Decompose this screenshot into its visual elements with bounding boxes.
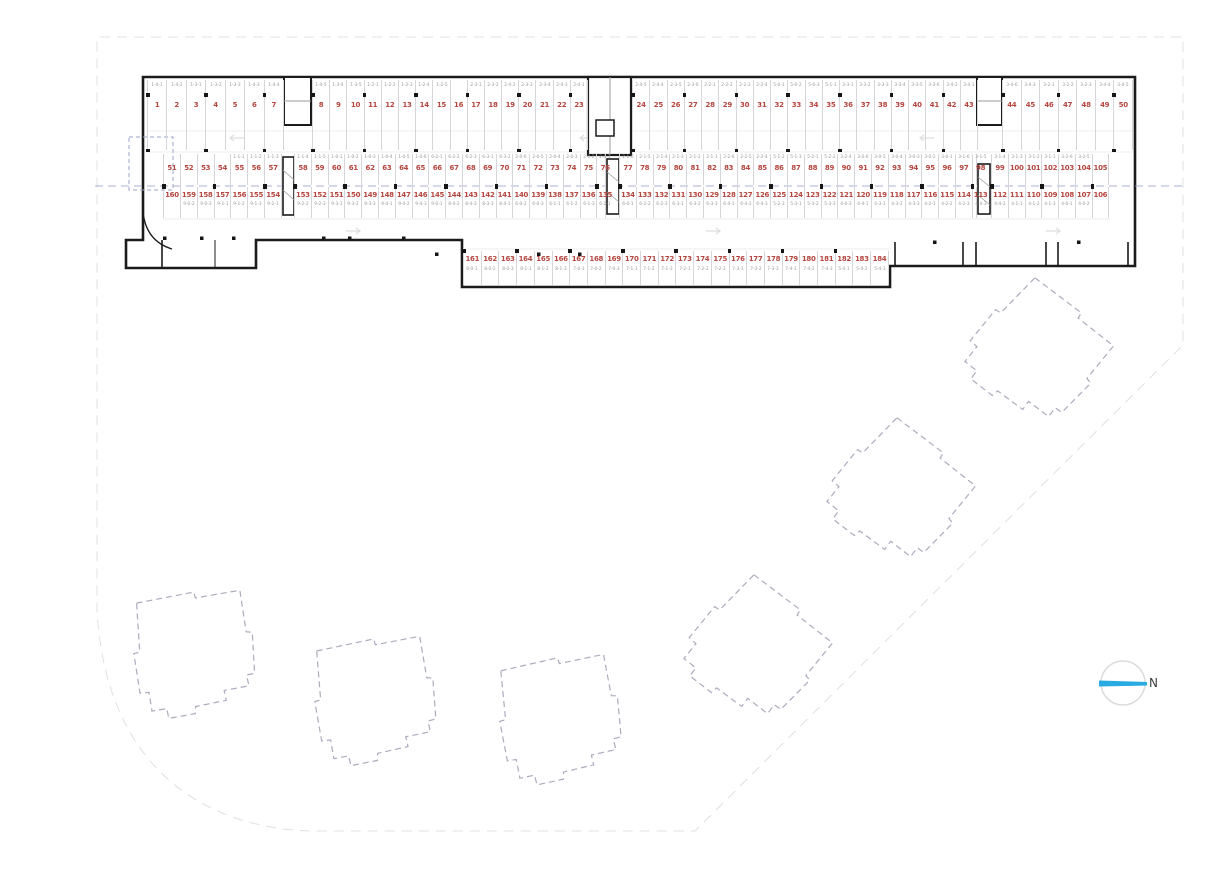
unit-code: 5-0-2: [791, 83, 802, 87]
parking-space-55: 1-1-155: [230, 154, 247, 185]
parking-space-174: 1747-2-2: [693, 251, 711, 285]
row-top-segment-1: 1-4-111-4-221-3-131-3-241-3-351-4-361-4-…: [147, 80, 284, 150]
unit-code: 1-4-5: [315, 83, 326, 87]
space-number: 54: [218, 164, 227, 172]
parking-space-66: 6-2-166: [428, 154, 445, 185]
unit-code: 8-4-1: [499, 202, 510, 206]
space-number: 2: [174, 101, 179, 109]
space-number: 176: [731, 255, 745, 263]
parking-space-97: 3-1-697: [955, 154, 972, 185]
space-number: 17: [471, 101, 480, 109]
parking-space-171: 1717-1-2: [640, 251, 658, 285]
parking-space-179: 1797-4-1: [782, 251, 800, 285]
space-number: 33: [792, 101, 801, 109]
parking-space-2: 1-4-22: [166, 80, 185, 150]
space-number: 66: [433, 164, 442, 172]
unit-code: 5-0-3: [808, 83, 819, 87]
space-number: 6: [252, 101, 257, 109]
parking-space-71: 2-0-671: [512, 154, 529, 185]
parking-space-36: 3-3-136: [839, 80, 856, 150]
parking-space-101: 3-1-2101: [1025, 154, 1042, 185]
space-number: 30: [740, 101, 749, 109]
unit-code: 9-0-1: [432, 202, 443, 206]
space-number: 68: [466, 164, 475, 172]
space-number: 22: [557, 101, 566, 109]
unit-code: 1-4-4: [268, 83, 279, 87]
unit-code: 2-0-3: [566, 155, 577, 159]
space-number: 153: [296, 191, 310, 199]
space-number: 15: [437, 101, 446, 109]
parking-space-172: 1727-1-3: [658, 251, 676, 285]
unit-code: 3-4-3: [1025, 83, 1036, 87]
unit-code: 6-4-2: [740, 202, 751, 206]
unit-code: 3-1-4: [994, 155, 1005, 159]
parking-space-57: 1-1-357: [264, 154, 281, 185]
unit-code: 2-3-6: [687, 83, 698, 87]
space-number: 136: [582, 191, 596, 199]
unit-code: 9-1-2: [234, 202, 245, 206]
footprint-outline: [308, 632, 442, 769]
unit-code: 7-1-1: [626, 267, 637, 271]
unit-code: 3-4-2: [946, 83, 957, 87]
parking-space-8: 1-4-58: [312, 80, 329, 150]
space-number: 7: [271, 101, 276, 109]
parking-space-46: 3-2-146: [1039, 80, 1058, 150]
parking-space-12: 1-2-212: [381, 80, 398, 150]
unit-code: 2-3-2: [487, 83, 498, 87]
parking-space-142: 1428-3-3: [479, 187, 496, 218]
unit-code: 1-3-2: [210, 83, 221, 87]
space-number: 38: [878, 101, 887, 109]
space-number: 149: [363, 191, 377, 199]
parking-space-59: 1-1-559: [311, 154, 328, 185]
parking-space-168: 1687-0-2: [587, 251, 605, 285]
unit-code: 1-3-3: [229, 83, 240, 87]
space-number: 113: [974, 191, 988, 199]
space-number: 76: [601, 164, 610, 172]
parking-space-134: 1346-0-1: [619, 187, 636, 218]
parking-space-49: 3-4-449: [1095, 80, 1114, 150]
unit-code: 6-3-1: [673, 202, 684, 206]
space-number: 145: [430, 191, 444, 199]
space-number: 35: [826, 101, 835, 109]
parking-space-117: 1174-3-3: [905, 187, 922, 218]
parking-space-169: 1697-0-3: [605, 251, 623, 285]
parking-space-96: 3-0-196: [938, 154, 955, 185]
footprint-outline: [128, 586, 260, 721]
row-mid-upper-segment-1: 515253541-1-1551-1-2561-1-357: [163, 154, 282, 185]
space-number: 134: [621, 191, 635, 199]
unit-code: 3-0-4: [891, 155, 902, 159]
space-number: 156: [233, 191, 247, 199]
unit-code: 7-4-3: [821, 267, 832, 271]
space-number: 100: [1010, 164, 1024, 172]
unit-code: 1-0-3: [364, 155, 375, 159]
unit-code: 3-0-2: [925, 155, 936, 159]
space-number: 138: [548, 191, 562, 199]
parking-space-147: 1479-4-2: [395, 187, 412, 218]
space-number: 32: [775, 101, 784, 109]
parking-space-70: 6-3-270: [496, 154, 513, 185]
unit-code: 4-1-2: [1028, 202, 1039, 206]
unit-code: 3-3-2: [860, 83, 871, 87]
space-number: 172: [660, 255, 674, 263]
space-number: 159: [182, 191, 196, 199]
unit-code: 4-4-3: [975, 202, 986, 206]
parking-space-18: 2-3-218: [484, 80, 501, 150]
parking-space-145: 1459-0-1: [428, 187, 445, 218]
unit-code: 8-0-2: [484, 267, 495, 271]
space-number: 46: [1044, 101, 1053, 109]
parking-space-149: 1499-3-3: [361, 187, 378, 218]
unit-code: 5-2-1: [807, 155, 818, 159]
unit-code: 7-4-2: [803, 267, 814, 271]
space-number: 110: [1027, 191, 1041, 199]
space-number: 23: [574, 101, 583, 109]
unit-code: 5-3-1: [790, 202, 801, 206]
unit-code: 3-4-5: [1118, 83, 1129, 87]
unit-code: 1-2-5: [436, 83, 447, 87]
space-number: 50: [1119, 101, 1128, 109]
parking-space-44: 3-4-644: [1002, 80, 1021, 150]
unit-code: 1-4-2: [171, 83, 182, 87]
parking-space-54: 54: [214, 154, 231, 185]
row-top-segment-2: 1-4-581-3-491-3-5101-2-1111-2-2121-2-313…: [312, 80, 588, 150]
unit-code: 3-1-5: [975, 155, 986, 159]
parking-space-122: 1225-3-3: [821, 187, 838, 218]
space-number: 21: [540, 101, 549, 109]
space-number: 90: [842, 164, 851, 172]
parking-space-173: 1737-2-1: [675, 251, 693, 285]
space-number: 57: [269, 164, 278, 172]
unit-code: 4-4-2: [994, 202, 1005, 206]
parking-space-93: 3-0-493: [888, 154, 905, 185]
parking-space-105: 105: [1092, 154, 1108, 185]
parking-space-130: 1306-3-2: [686, 187, 703, 218]
unit-code: 9-4-3: [415, 202, 426, 206]
parking-space-127: 1276-4-2: [737, 187, 754, 218]
parking-space-110: 1104-1-2: [1025, 187, 1042, 218]
parking-space-75: 2-0-275: [580, 154, 597, 185]
parking-space-94: 3-0-394: [905, 154, 922, 185]
parking-space-181: 1817-4-3: [817, 251, 835, 285]
unit-code: 8-4-2: [448, 202, 459, 206]
space-number: 131: [671, 191, 685, 199]
parking-space-68: 6-2-368: [462, 154, 479, 185]
unit-code: 6-2-1: [432, 155, 443, 159]
parking-space-14: 1-2-414: [415, 80, 432, 150]
unit-code: 1-0-1: [331, 155, 342, 159]
space-number: 164: [519, 255, 533, 263]
unit-code: 3-0-5: [874, 155, 885, 159]
space-number: 72: [533, 164, 542, 172]
parking-space-126: 1266-4-3: [753, 187, 770, 218]
unit-code: 3-2-5: [1078, 155, 1089, 159]
parking-space-104: 3-2-5104: [1075, 154, 1092, 185]
space-number: 56: [252, 164, 261, 172]
parking-space-119: 1194-3-1: [871, 187, 888, 218]
parking-space-67: 6-2-267: [445, 154, 462, 185]
unit-code: 2-4-3: [556, 83, 567, 87]
space-number: 79: [657, 164, 666, 172]
unit-code: 6-2-3: [465, 155, 476, 159]
space-number: 179: [784, 255, 798, 263]
space-number: 130: [688, 191, 702, 199]
parking-space-21: 2-3-421: [535, 80, 552, 150]
parking-space-32: 5-0-132: [770, 80, 787, 150]
north-arrow-icon: [1099, 661, 1147, 705]
space-number: 122: [823, 191, 837, 199]
space-number: 165: [536, 255, 550, 263]
space-number: 9: [336, 101, 341, 109]
space-number: 151: [330, 191, 344, 199]
space-number: 64: [399, 164, 408, 172]
space-number: 177: [749, 255, 763, 263]
space-number: 135: [598, 191, 612, 199]
parking-space-3: 1-3-13: [186, 80, 205, 150]
unit-code: 7-2-1: [679, 267, 690, 271]
parking-space-1: 1-4-11: [147, 80, 166, 150]
space-number: 129: [705, 191, 719, 199]
parking-space-89: 5-2-289: [821, 154, 838, 185]
parking-space-156: 1569-1-2: [230, 187, 247, 218]
parking-space-79: 2-1-479: [653, 154, 670, 185]
space-number: 27: [688, 101, 697, 109]
space-number: 89: [825, 164, 834, 172]
parking-space-45: 3-4-345: [1021, 80, 1040, 150]
north-label: N: [1149, 676, 1158, 690]
unit-code: 8-0-3: [502, 267, 513, 271]
parking-space-113: 1134-4-3: [972, 187, 989, 218]
parking-space-10: 1-3-510: [346, 80, 363, 150]
unit-code: 5-3-2: [807, 202, 818, 206]
space-number: 178: [766, 255, 780, 263]
unit-code: 2-0-5: [532, 155, 543, 159]
unit-code: 5-4-2: [856, 267, 867, 271]
unit-code: 2-2-2: [722, 83, 733, 87]
unit-code: 2-1-2: [689, 155, 700, 159]
space-number: 71: [517, 164, 526, 172]
unit-code: 2-2-4: [757, 155, 768, 159]
space-number: 109: [1043, 191, 1057, 199]
row-mid-upper-segment-4: 3-1-4993-1-31003-1-21013-1-11023-2-61033…: [991, 154, 1109, 185]
parking-space-167: 1677-0-1: [569, 251, 587, 285]
parking-space-60: 1-0-160: [328, 154, 345, 185]
unit-code: 4-2-1: [925, 202, 936, 206]
space-number: 5: [233, 101, 238, 109]
space-number: 132: [655, 191, 669, 199]
parking-space-84: 2-2-584: [737, 154, 754, 185]
unit-code: 1-2-4: [419, 83, 430, 87]
unit-code: 1-3-5: [350, 83, 361, 87]
unit-code: 7-0-2: [591, 267, 602, 271]
space-number: 180: [802, 255, 816, 263]
parking-space-74: 2-0-374: [563, 154, 580, 185]
parking-space-140: 1406-0-2: [512, 187, 529, 218]
unit-code: 2-1-1: [706, 155, 717, 159]
parking-space-144: 1448-4-2: [445, 187, 462, 218]
parking-space-16: 16: [450, 80, 467, 150]
parking-space-125: 1255-2-3: [770, 187, 787, 218]
space-number: 127: [739, 191, 753, 199]
parking-space-9: 1-3-49: [329, 80, 346, 150]
parking-space-137: 1376-1-2: [563, 187, 580, 218]
unit-code: 3-0-6: [857, 155, 868, 159]
unit-code: 7-3-2: [750, 267, 761, 271]
unit-code: 3-2-1: [1043, 83, 1054, 87]
parking-space-58: 1-1-458: [294, 154, 311, 185]
space-number: 111: [1010, 191, 1024, 199]
parking-space-85: 2-2-485: [753, 154, 770, 185]
unit-code: 7-1-2: [644, 267, 655, 271]
space-number: 133: [638, 191, 652, 199]
parking-space-107: 1074-0-2: [1075, 187, 1092, 218]
parking-space-91: 3-0-691: [854, 154, 871, 185]
space-number: 162: [483, 255, 497, 263]
parking-space-63: 1-0-463: [378, 154, 395, 185]
space-number: 161: [465, 255, 479, 263]
unit-code: 1-0-2: [348, 155, 359, 159]
unit-code: 6-0-1: [622, 202, 633, 206]
parking-space-138: 1386-1-1: [546, 187, 563, 218]
unit-code: 5-1-3: [790, 155, 801, 159]
parking-space-177: 1777-3-2: [746, 251, 764, 285]
parking-space-124: 1245-3-1: [787, 187, 804, 218]
unit-code: 3-3-5: [911, 83, 922, 87]
unit-code: 7-3-1: [732, 267, 743, 271]
space-number: 82: [707, 164, 716, 172]
unit-code: 1-1-3: [267, 155, 278, 159]
space-number: 99: [995, 164, 1004, 172]
row-mid-lower-segment-1: 1601599-0-21589-0-31579-1-11569-1-21559-…: [163, 187, 282, 218]
unit-code: 6-4-1: [723, 202, 734, 206]
space-number: 168: [589, 255, 603, 263]
footprint-outline: [492, 650, 628, 789]
row-mid-upper-segment-3: 2-1-6772-1-5782-1-4792-1-3802-1-2812-1-1…: [619, 154, 977, 185]
parking-space-158: 1589-0-3: [197, 187, 214, 218]
unit-code: 3-3-6: [929, 83, 940, 87]
parking-space-27: 2-3-627: [684, 80, 701, 150]
parking-space-114: 1144-2-3: [955, 187, 972, 218]
parking-space-28: 2-2-128: [701, 80, 718, 150]
unit-code: 2-4-2: [504, 83, 515, 87]
space-number: 29: [723, 101, 732, 109]
space-number: 14: [420, 101, 429, 109]
unit-code: 3-3-1: [842, 83, 853, 87]
space-number: 40: [913, 101, 922, 109]
parking-space-136: 1366-1-3: [580, 187, 597, 218]
space-number: 13: [402, 101, 411, 109]
parking-space-80: 2-1-380: [669, 154, 686, 185]
space-number: 63: [382, 164, 391, 172]
unit-code: 5-1-2: [773, 155, 784, 159]
parking-space-23: 2-4-123: [570, 80, 587, 150]
parking-space-42: 3-4-242: [943, 80, 960, 150]
unit-code: 6-3-3: [706, 202, 717, 206]
unit-code: 9-0-2: [183, 202, 194, 206]
unit-code: 3-4-6: [1006, 83, 1017, 87]
space-number: 48: [1082, 101, 1091, 109]
unit-code: 1-1-5: [314, 155, 325, 159]
unit-code: 1-2-3: [401, 83, 412, 87]
space-number: 118: [890, 191, 904, 199]
parking-space-175: 1757-2-3: [711, 251, 729, 285]
space-number: 91: [858, 164, 867, 172]
row-top-segment-4: 3-4-6443-4-3453-2-1463-2-2473-2-3483-4-4…: [1002, 80, 1133, 150]
space-number: 42: [947, 101, 956, 109]
unit-code: 5-4-3: [874, 267, 885, 271]
space-number: 140: [514, 191, 528, 199]
unit-code: 8-3-3: [482, 202, 493, 206]
unit-code: 3-2-2: [1062, 83, 1073, 87]
parking-space-108: 1084-0-1: [1058, 187, 1075, 218]
space-number: 96: [942, 164, 951, 172]
unit-code: 5-4-1: [838, 267, 849, 271]
unit-code: 4-0-2: [1078, 202, 1089, 206]
space-number: 28: [706, 101, 715, 109]
parking-space-73: 2-0-473: [546, 154, 563, 185]
parking-space-157: 1579-1-1: [214, 187, 231, 218]
unit-code: 7-4-1: [785, 267, 796, 271]
unit-code: 2-2-3: [739, 83, 750, 87]
unit-code: 2-4-5: [635, 83, 646, 87]
building-footprints: [128, 269, 1121, 789]
space-number: 16: [454, 101, 463, 109]
space-number: 166: [554, 255, 568, 263]
parking-space-24: 2-4-524: [632, 80, 649, 150]
unit-code: 1-2-2: [384, 83, 395, 87]
space-number: 93: [892, 164, 901, 172]
space-number: 10: [351, 101, 360, 109]
space-number: 18: [488, 101, 497, 109]
parking-space-100: 3-1-3100: [1008, 154, 1025, 185]
parking-space-31: 2-2-431: [753, 80, 770, 150]
space-number: 143: [464, 191, 478, 199]
parking-space-133: 1336-2-2: [636, 187, 653, 218]
parking-space-86: 5-1-286: [770, 154, 787, 185]
unit-code: 4-0-1: [1061, 202, 1072, 206]
parking-space-48: 3-2-348: [1076, 80, 1095, 150]
space-number: 49: [1100, 101, 1109, 109]
unit-code: 2-2-5: [740, 155, 751, 159]
space-number: 81: [691, 164, 700, 172]
parking-space-61: 1-0-261: [344, 154, 361, 185]
space-number: 25: [654, 101, 663, 109]
space-number: 163: [501, 255, 515, 263]
space-number: 58: [298, 164, 307, 172]
unit-code: 2-0-1: [600, 155, 611, 159]
parking-space-76: 2-0-176: [596, 154, 613, 185]
unit-code: 5-2-2: [824, 155, 835, 159]
space-number: 103: [1060, 164, 1074, 172]
space-number: 184: [873, 255, 887, 263]
space-number: 88: [808, 164, 817, 172]
space-number: 170: [625, 255, 639, 263]
parking-space-92: 3-0-592: [871, 154, 888, 185]
parking-space-35: 5-1-135: [822, 80, 839, 150]
unit-code: 9-4-1: [381, 202, 392, 206]
space-number: 142: [481, 191, 495, 199]
unit-code: 2-1-4: [656, 155, 667, 159]
space-number: 158: [199, 191, 213, 199]
space-number: 36: [844, 101, 853, 109]
unit-code: 5-3-3: [824, 202, 835, 206]
space-number: 126: [755, 191, 769, 199]
parking-space-11: 1-2-111: [364, 80, 381, 150]
parking-space-102: 3-1-1102: [1041, 154, 1058, 185]
parking-space-34: 5-0-334: [805, 80, 822, 150]
space-number: 167: [572, 255, 586, 263]
